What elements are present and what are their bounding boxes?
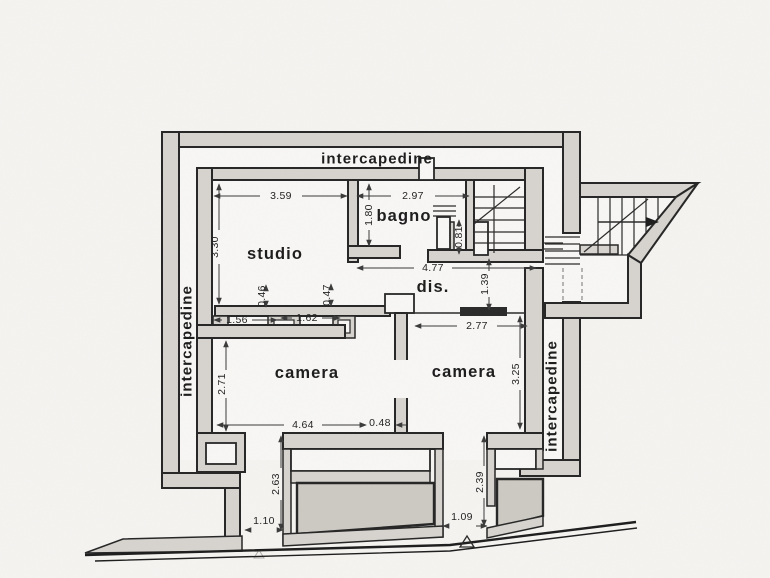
scanned-floor-plan: intercapedine intercapedine intercapedin… bbox=[0, 0, 770, 578]
floor-plan-svg: intercapedine intercapedine intercapedin… bbox=[0, 0, 770, 578]
scan-noise-overlay bbox=[0, 0, 770, 578]
